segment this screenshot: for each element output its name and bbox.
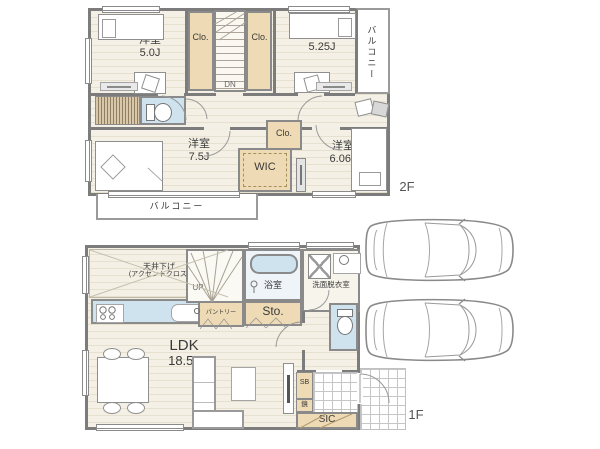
coffee-table — [231, 367, 256, 401]
bed-icon — [351, 128, 387, 191]
window-icon — [102, 6, 160, 13]
bathroom — [244, 249, 302, 301]
car-top-view-2 — [366, 299, 513, 361]
door-opening — [204, 127, 230, 130]
sliding-door — [296, 158, 306, 192]
shoe-in-closet-label: SIC — [300, 414, 354, 426]
low-window — [100, 82, 138, 91]
stairs-up-label: UP — [186, 283, 210, 292]
pantry-label: パントリー — [198, 310, 244, 317]
pillow — [359, 172, 381, 186]
car-top-view-1 — [366, 219, 513, 281]
room-ne-size: 5.25J — [286, 41, 358, 54]
window-icon — [108, 191, 240, 198]
sofa-icon — [192, 410, 244, 429]
floor1-label: 1F — [402, 408, 430, 423]
door-opening — [312, 127, 340, 130]
closet-center-label: Clo. — [265, 128, 303, 138]
door-opening — [298, 93, 324, 96]
wall-2f-hall-south — [88, 127, 390, 130]
tv-screen — [287, 375, 290, 403]
room-nw-size: 5.0J — [118, 47, 182, 60]
closet-nw — [188, 11, 214, 91]
wall-2f-roomne-west — [273, 8, 276, 96]
wic-label: WIC — [238, 161, 292, 174]
closet-ne-label: Clo. — [244, 32, 275, 42]
porch-tile — [360, 368, 406, 430]
bed-icon — [95, 141, 163, 191]
entrance-floor — [313, 372, 358, 413]
pillow — [102, 19, 116, 38]
vanity-sink-icon — [333, 253, 361, 274]
bed-icon — [289, 13, 356, 39]
dining-chair — [127, 348, 145, 360]
deck-slats — [95, 96, 140, 125]
dining-chair — [103, 348, 121, 360]
closet-nw-label: Clo. — [185, 32, 216, 42]
dining-table — [97, 357, 149, 403]
front-door-opening — [357, 373, 363, 404]
balcony-east-label: バルコニー — [366, 16, 376, 88]
tv-board-icon — [283, 363, 294, 414]
toilet-icon — [337, 316, 353, 335]
bathroom-label: 浴室 — [250, 280, 296, 290]
pillow — [338, 18, 352, 37]
sofa-icon — [192, 356, 216, 414]
toilet-room-2f — [140, 96, 186, 125]
room-sw-label: 洋室 7.5J — [166, 138, 232, 163]
window-icon — [288, 6, 350, 13]
window-icon — [82, 350, 89, 396]
window-icon — [96, 424, 184, 431]
window-icon — [82, 256, 89, 294]
staircase-1f — [186, 249, 244, 303]
window-icon — [85, 140, 92, 182]
stove-burners-icon — [96, 304, 124, 323]
bed-icon — [98, 14, 164, 40]
floor2-label: 2F — [393, 180, 421, 195]
washroom-label: 洗面脱衣室 — [302, 281, 360, 290]
cushion — [371, 100, 390, 117]
closet-ne — [246, 11, 272, 91]
low-window — [316, 82, 352, 91]
window-icon — [248, 242, 300, 249]
toilet-icon — [154, 103, 172, 122]
mirror-label: 鏡 — [296, 401, 313, 408]
room-sw-size: 7.5J — [166, 151, 232, 164]
balcony-south-label: バルコニー — [96, 201, 258, 211]
toilet-room-1f — [329, 303, 358, 351]
stair-opening — [216, 93, 243, 96]
stairs-dn-label: DN — [215, 80, 245, 89]
ldk-name: LDK — [148, 337, 220, 354]
dining-chair — [103, 402, 121, 414]
washing-machine-icon — [308, 254, 331, 279]
window-icon — [85, 38, 92, 84]
storage-label: Sto. — [244, 305, 302, 319]
dining-chair — [127, 402, 145, 414]
shoe-box-label: SB — [296, 379, 313, 387]
room-sw-name: 洋室 — [166, 138, 232, 151]
window-icon — [306, 242, 354, 249]
pillow — [100, 154, 125, 179]
floor-plan-canvas: バルコニー Clo. DN Clo. 洋室 5.0J 洋室 5.25J 洋室 — [0, 0, 600, 449]
bathtub-icon — [250, 254, 298, 274]
wall-1f-hall — [302, 350, 305, 372]
wall-1f-hall — [302, 311, 305, 323]
window-icon — [312, 191, 356, 198]
